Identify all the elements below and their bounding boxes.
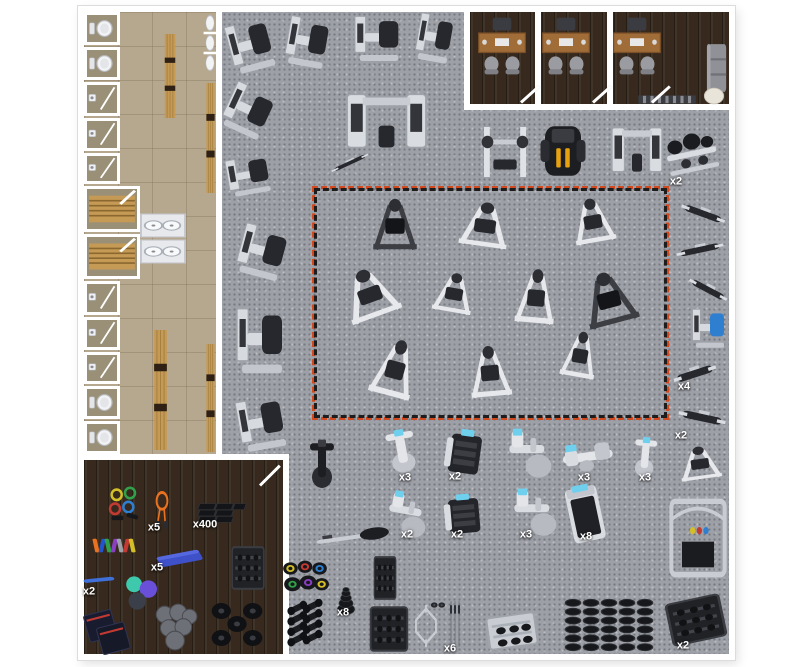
quantity-label: x2 — [401, 530, 413, 541]
locker-bench — [163, 34, 177, 118]
dumbbell-pairs[interactable] — [283, 599, 329, 649]
adjustable-bench[interactable] — [667, 351, 723, 396]
quantity-label: x2 — [677, 641, 689, 652]
mini-band-set[interactable] — [91, 535, 137, 557]
quantity-label: x8 — [580, 532, 592, 543]
glute-ham-machine[interactable] — [450, 195, 521, 257]
seated-stepper[interactable] — [436, 489, 492, 541]
iso-lateral-press[interactable] — [424, 266, 484, 322]
shower-stall — [84, 118, 120, 151]
office-desk-set — [609, 15, 665, 77]
dumbbell-rack-2tier[interactable] — [660, 589, 733, 651]
plate-tree[interactable] — [372, 553, 398, 603]
quantity-label: x3 — [578, 473, 590, 484]
quantity-label: x2 — [670, 177, 682, 188]
elliptical-trainer[interactable] — [500, 424, 556, 480]
locker-bench — [152, 330, 169, 450]
sauna-room — [84, 234, 140, 279]
quantity-label: x2 — [83, 587, 95, 598]
slam-balls[interactable] — [208, 600, 266, 648]
quantity-label: x4 — [678, 382, 690, 393]
barbell-plate-rack[interactable] — [657, 122, 727, 188]
shower-stall — [84, 352, 120, 384]
wall-bench — [205, 83, 216, 193]
quantity-label: x3 — [399, 473, 411, 484]
quantity-label: x5 — [151, 563, 163, 574]
leg-raise-tower[interactable] — [689, 303, 731, 353]
office-desk-set — [538, 15, 594, 77]
functional-trainer[interactable] — [536, 118, 590, 184]
preacher-bench[interactable] — [675, 192, 732, 235]
cable-crossover-machine[interactable] — [607, 120, 667, 182]
quantity-label: x8 — [337, 608, 349, 619]
air-bike[interactable] — [298, 436, 346, 494]
toilet-stall — [84, 421, 120, 454]
glute-extension-machine[interactable] — [229, 385, 298, 460]
lat-pulldown-tower[interactable] — [409, 5, 463, 72]
office-desk-set — [474, 15, 530, 77]
glute-kickback-machine[interactable] — [552, 324, 607, 387]
preacher-curl-machine[interactable] — [219, 147, 281, 204]
quantity-label: x3 — [520, 530, 532, 541]
smith-machine[interactable] — [477, 122, 533, 182]
quantity-label: x2 — [675, 431, 687, 442]
yoga-mats[interactable] — [156, 545, 204, 573]
barbell-collars[interactable] — [429, 598, 447, 612]
office-door — [592, 85, 612, 103]
quantity-label: x400 — [193, 520, 217, 531]
shower-stall — [84, 281, 120, 315]
office-round-table — [703, 87, 725, 105]
shower-stall — [84, 153, 120, 184]
quantity-label: x2 — [449, 472, 461, 483]
dip-chin-assist-tower[interactable] — [232, 298, 292, 382]
accessories-door — [259, 465, 281, 487]
barbell-set[interactable] — [447, 599, 463, 649]
t-bar-row-machine[interactable] — [562, 191, 625, 254]
toilet-stall — [84, 47, 120, 80]
storage-shelf[interactable] — [480, 606, 543, 656]
bench-press-station[interactable] — [670, 440, 729, 487]
chest-press-machine[interactable] — [350, 9, 408, 67]
multi-station-jungle[interactable] — [339, 85, 434, 160]
medicine-ball-set[interactable] — [150, 602, 200, 652]
sink-counter — [140, 239, 186, 264]
leg-press-machine[interactable] — [278, 7, 340, 77]
shoulder-press-machine[interactable] — [228, 214, 301, 291]
gym-floor-plan-canvas: x2x4x2x3x2x3x3x2x2x3x8x8x6x2x5x400x5x2 — [0, 0, 800, 667]
seated-dip-machine[interactable] — [507, 263, 565, 333]
hyperextension-bench[interactable] — [672, 232, 728, 268]
shower-stall — [84, 82, 120, 116]
sauna-room — [84, 186, 140, 232]
pec-fly-machine[interactable] — [218, 7, 287, 83]
resistance-band-set[interactable] — [105, 486, 145, 528]
functional-rig-platform[interactable] — [666, 494, 730, 582]
dumbbell-columns[interactable] — [561, 597, 657, 653]
toilet-stall — [84, 12, 120, 45]
shower-stall — [84, 317, 120, 350]
leg-curl-machine[interactable] — [212, 72, 288, 150]
storage-rack-black[interactable] — [229, 543, 267, 593]
kettlebell-set[interactable] — [280, 558, 330, 600]
quantity-label: x3 — [639, 473, 651, 484]
plyo-boxes[interactable] — [82, 606, 134, 656]
toilet-stall — [84, 386, 120, 419]
sink-counter — [140, 213, 186, 238]
v-squat-machine[interactable] — [366, 195, 424, 257]
office-door — [520, 85, 540, 103]
quantity-label: x2 — [451, 530, 463, 541]
quantity-label: x5 — [148, 523, 160, 534]
radiator-vent — [637, 94, 697, 105]
elliptical-trainer-2[interactable] — [505, 484, 561, 538]
quantity-label: x6 — [444, 644, 456, 655]
kettlebell-rack[interactable] — [367, 603, 411, 655]
seated-row-machine[interactable] — [460, 340, 519, 406]
wall-bench — [205, 344, 216, 452]
stair-climber[interactable] — [435, 423, 494, 484]
urinal-row — [203, 13, 217, 73]
